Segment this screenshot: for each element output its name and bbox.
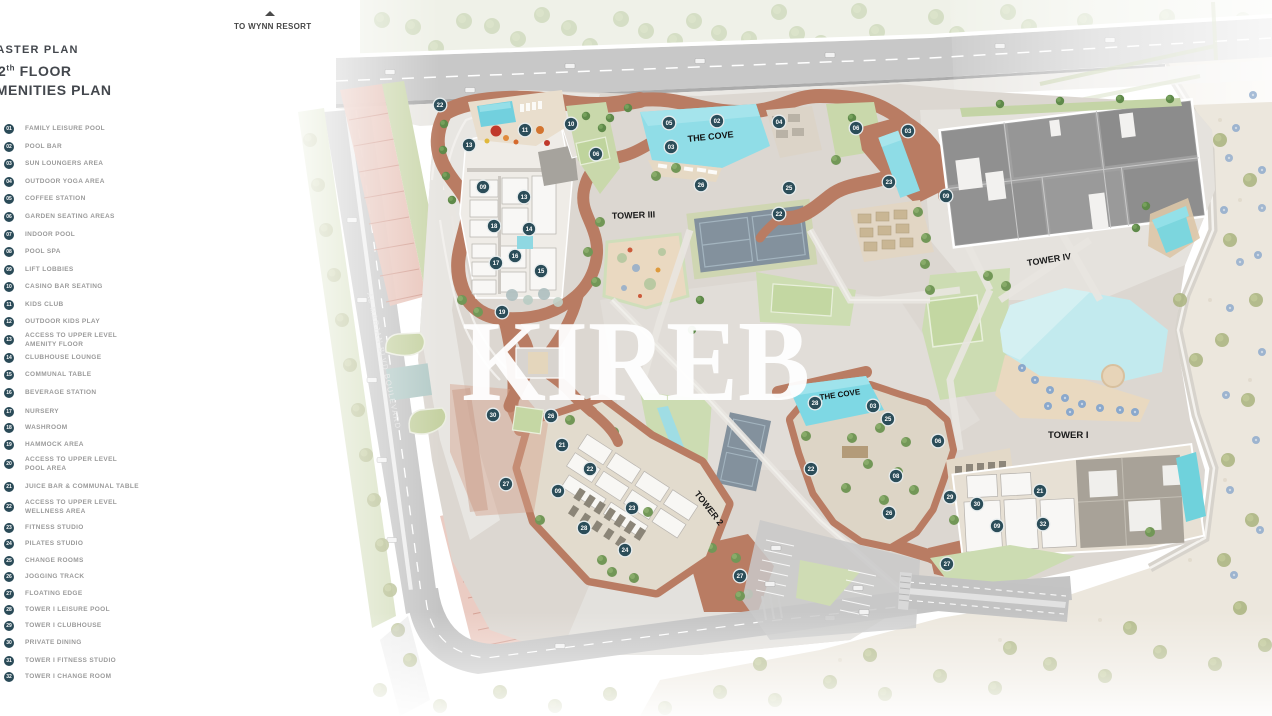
svg-text:09: 09 [994, 524, 1001, 530]
svg-text:28: 28 [581, 526, 588, 532]
svg-text:22: 22 [776, 212, 783, 218]
svg-text:27: 27 [737, 574, 744, 580]
svg-text:21: 21 [1037, 489, 1044, 495]
svg-text:13: 13 [521, 195, 528, 201]
svg-text:KIREB: KIREB [462, 298, 810, 426]
svg-text:10: 10 [568, 122, 575, 128]
svg-text:13: 13 [466, 143, 473, 149]
svg-text:17: 17 [493, 261, 500, 267]
svg-text:26: 26 [886, 511, 893, 517]
svg-text:05: 05 [666, 121, 673, 127]
svg-text:06: 06 [853, 126, 860, 132]
svg-text:08: 08 [893, 474, 900, 480]
svg-text:32: 32 [1040, 522, 1047, 528]
svg-text:09: 09 [943, 194, 950, 200]
svg-text:14: 14 [526, 227, 533, 233]
svg-text:02: 02 [714, 119, 721, 125]
svg-text:06: 06 [935, 439, 942, 445]
svg-text:TOWER I: TOWER I [1048, 430, 1088, 441]
svg-text:03: 03 [870, 404, 877, 410]
svg-text:21: 21 [559, 443, 566, 449]
svg-text:06: 06 [593, 152, 600, 158]
svg-text:23: 23 [629, 506, 636, 512]
svg-text:15: 15 [538, 269, 545, 275]
svg-text:09: 09 [480, 185, 487, 191]
svg-text:25: 25 [786, 186, 793, 192]
svg-text:TOWER III: TOWER III [612, 209, 656, 221]
svg-text:09: 09 [555, 489, 562, 495]
svg-text:18: 18 [491, 224, 498, 230]
svg-text:TO WYNN RESORT: TO WYNN RESORT [234, 22, 311, 31]
svg-text:30: 30 [974, 502, 981, 508]
svg-text:23: 23 [886, 180, 893, 186]
svg-text:28: 28 [812, 401, 819, 407]
svg-text:27: 27 [503, 482, 510, 488]
svg-text:27: 27 [944, 562, 951, 568]
svg-text:03: 03 [668, 145, 675, 151]
svg-text:26: 26 [698, 183, 705, 189]
svg-text:22: 22 [808, 467, 815, 473]
svg-text:11: 11 [522, 128, 529, 134]
svg-text:03: 03 [905, 129, 912, 135]
svg-text:24: 24 [622, 548, 629, 554]
svg-text:16: 16 [512, 254, 519, 260]
svg-text:25: 25 [885, 417, 892, 423]
svg-text:22: 22 [587, 467, 594, 473]
svg-text:04: 04 [776, 120, 783, 126]
svg-text:29: 29 [947, 495, 954, 501]
